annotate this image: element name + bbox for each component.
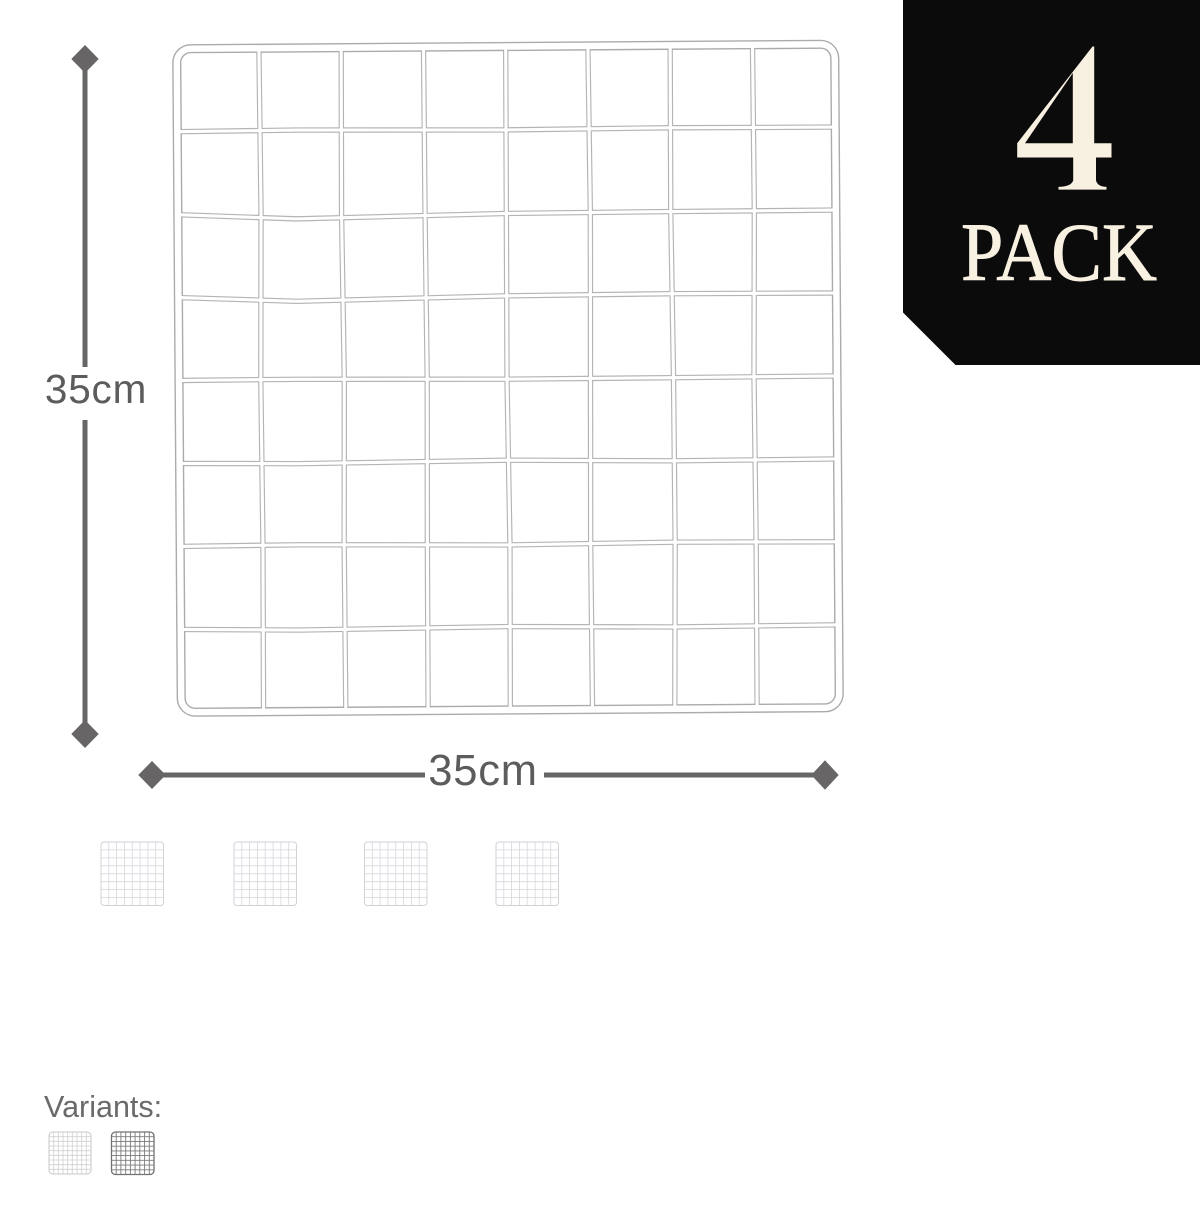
svg-text:35cm: 35cm [45, 366, 147, 412]
svg-text:35cm: 35cm [428, 747, 538, 795]
svg-text:PACK: PACK [961, 206, 1157, 298]
svg-text:Variants:: Variants: [44, 1090, 162, 1124]
